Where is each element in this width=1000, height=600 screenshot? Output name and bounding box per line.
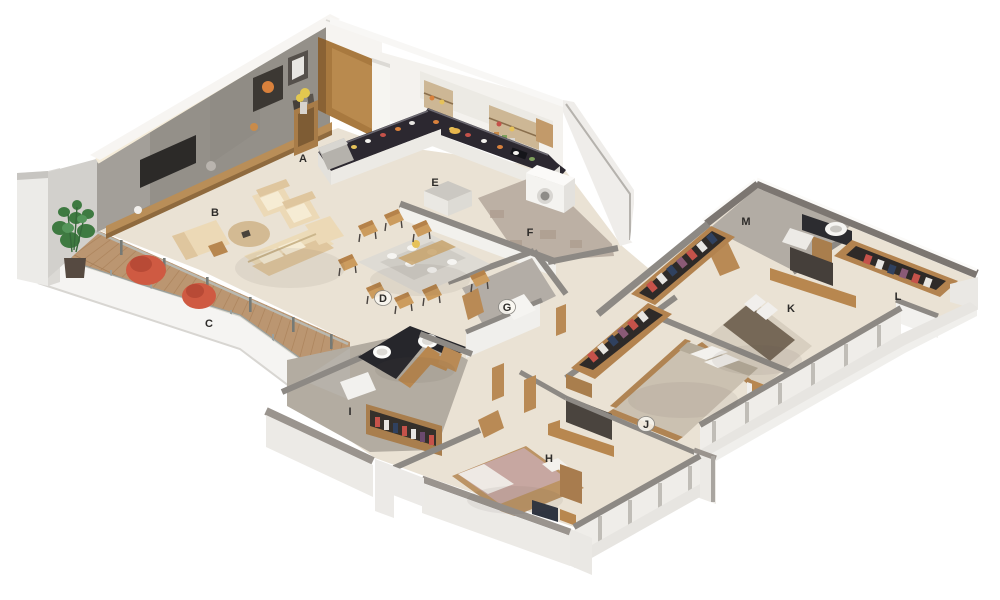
svg-text:L: L — [895, 291, 902, 303]
svg-text:B: B — [211, 207, 219, 219]
svg-text:M: M — [741, 216, 750, 228]
svg-text:J: J — [643, 419, 649, 431]
svg-text:H: H — [545, 453, 553, 465]
svg-text:K: K — [787, 303, 795, 315]
svg-text:G: G — [503, 302, 512, 314]
svg-text:A: A — [299, 153, 307, 165]
svg-text:E: E — [431, 177, 438, 189]
svg-text:D: D — [379, 293, 387, 305]
svg-text:F: F — [527, 227, 534, 239]
svg-text:C: C — [205, 318, 213, 330]
svg-text:I: I — [348, 406, 351, 418]
